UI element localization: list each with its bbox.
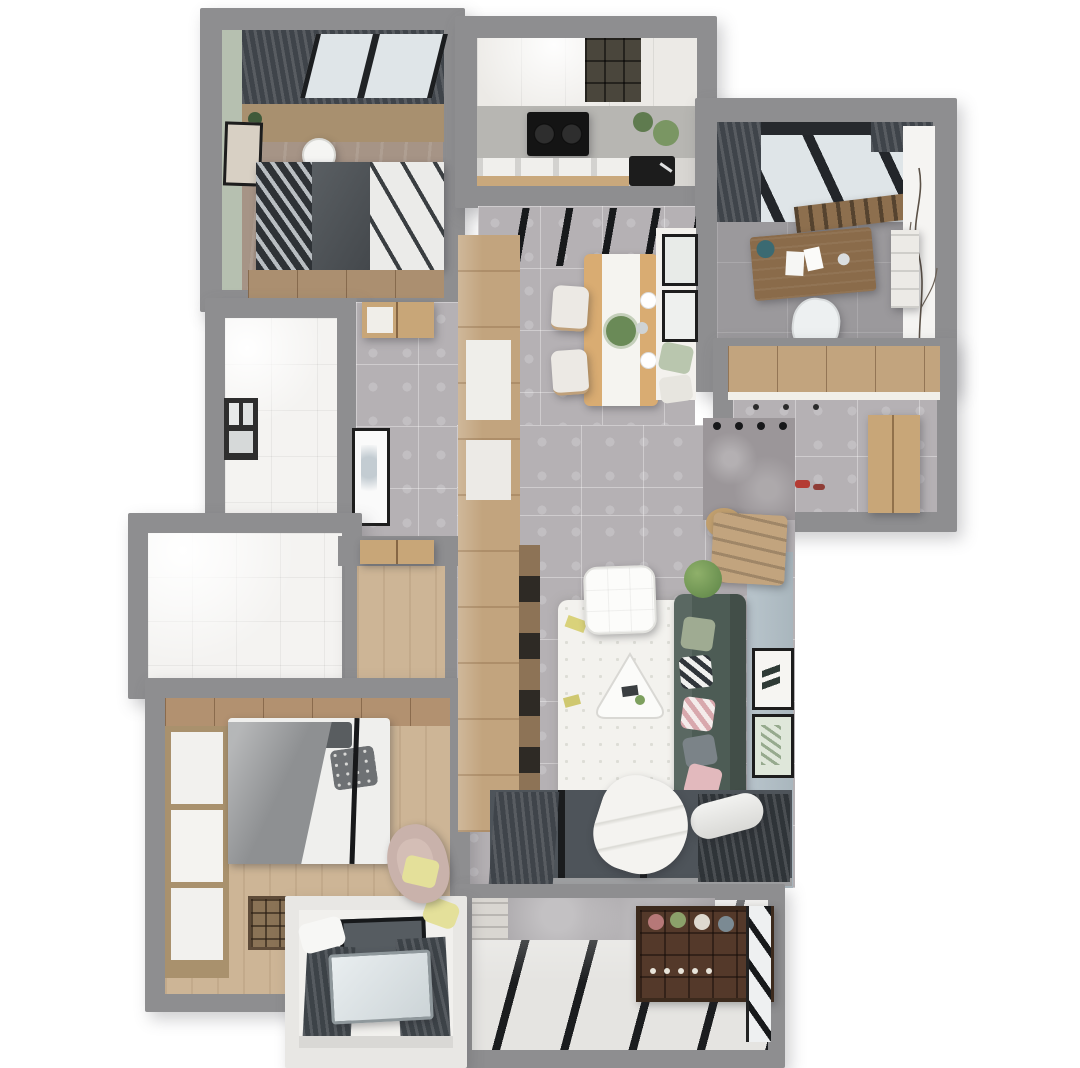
corridor-closet [703, 418, 795, 520]
bench-art [662, 290, 698, 342]
plate-icon [640, 352, 657, 369]
sofa [674, 594, 746, 812]
desk-lamp-icon [756, 239, 776, 259]
teapot-icon [636, 322, 648, 334]
study-curtain-left [717, 122, 761, 222]
bedroom1-headboard-shelf [242, 104, 444, 142]
faucet [659, 162, 672, 172]
armchair-pillow [401, 854, 440, 889]
pot-icon [648, 914, 664, 930]
centerpiece-plant-icon [606, 316, 636, 346]
room-bathroom2 [128, 513, 362, 699]
window-mullion [357, 34, 380, 98]
living-slat-bench [710, 512, 788, 586]
bedroom2-bed [228, 718, 390, 864]
pot-icon [670, 912, 686, 928]
coat-hook-icon [753, 404, 759, 410]
wardrobe-door [171, 810, 223, 882]
kitchen-plant-icon [633, 112, 653, 132]
living-wall-art-calligraphy [752, 648, 794, 710]
window-pane [229, 403, 239, 425]
tv-cabinet-openings [519, 545, 540, 830]
bathroom2-floor [148, 533, 342, 679]
bench-cushion [658, 374, 693, 404]
bed-throw [312, 162, 370, 270]
sofa-backrest [730, 594, 746, 812]
dining-chair [550, 285, 589, 332]
wardrobe-door [171, 732, 223, 804]
kitchen-wood-floor [477, 176, 629, 186]
door-panel [367, 307, 393, 333]
sofa-pillow-zigzag [678, 654, 713, 689]
coat-hook-icon [783, 404, 789, 410]
bedroom1-bed [256, 162, 444, 270]
balcony-cabinet [472, 898, 508, 940]
sofa-pillow-grey [682, 733, 719, 768]
bathroom1-window [224, 398, 258, 460]
cup-icon [837, 253, 850, 266]
bench-art [662, 234, 698, 286]
bay-sill [299, 1036, 453, 1048]
red-shoes [795, 480, 810, 488]
dining-table [584, 254, 658, 406]
hall-door-top [362, 302, 434, 338]
bedroom2-wardrobe [165, 726, 229, 978]
art-content [761, 725, 781, 765]
kitchen-open-shelf [585, 38, 641, 102]
kitchen-sink [629, 156, 675, 186]
cabinet-white-door [466, 340, 511, 420]
entry-shoe-cabinet [728, 346, 940, 394]
entry-door [868, 415, 920, 513]
bay-glass-table [328, 949, 434, 1024]
room-kitchen [455, 16, 717, 208]
hall-wall-art [352, 428, 390, 526]
paper-sheet [785, 251, 804, 276]
storage-cabinet-column [458, 235, 520, 832]
study-desk [749, 227, 876, 301]
bedroom2-annex [345, 550, 457, 696]
window-mullion [558, 790, 565, 886]
room-bay-window [285, 896, 467, 1068]
radiator [891, 230, 919, 308]
floorplan-scene [0, 0, 1080, 1068]
window-pane [229, 431, 253, 453]
living-wall-art-botanical [752, 714, 794, 778]
pot-icon [718, 916, 734, 932]
bottle-row-icon [650, 968, 656, 974]
bed-duvet [370, 162, 444, 270]
bedroom1-window [300, 34, 448, 98]
track-lights [713, 422, 721, 430]
rug-accent [563, 694, 581, 708]
window-pane [243, 403, 253, 425]
annex-floor [357, 562, 445, 696]
wardrobe-door [171, 888, 223, 960]
balcony-window [746, 906, 771, 1042]
pot-icon [694, 914, 710, 930]
door-seam [396, 540, 398, 564]
bedroom2-door [360, 540, 434, 564]
coat-hook-icon [813, 404, 819, 410]
paper-sheet [803, 247, 823, 272]
cooktop [527, 112, 589, 156]
cabinet-underside [728, 392, 940, 400]
door-seam [396, 302, 398, 338]
art-content [762, 659, 780, 695]
kitchen-plant2-icon [653, 120, 679, 146]
white-pouf [583, 565, 657, 635]
sofa-pillow-pink-chevron [680, 696, 716, 732]
room-bedroom1 [200, 8, 465, 312]
living-plant-icon [684, 560, 722, 598]
bed-pillows [256, 162, 312, 270]
red-shoes [813, 484, 825, 490]
kitchen-lower-cabinets [477, 158, 629, 178]
plate-icon [640, 292, 657, 309]
cabinet-white-door [466, 440, 511, 500]
dining-chair [550, 349, 589, 396]
room-bathroom1 [205, 298, 357, 538]
sofa-pillow-green [680, 616, 716, 652]
art-content [361, 445, 377, 501]
bedroom1-wardrobe [248, 270, 444, 298]
coffee-table [588, 646, 672, 730]
living-curtain-left [489, 792, 559, 884]
room-balcony [455, 884, 785, 1068]
